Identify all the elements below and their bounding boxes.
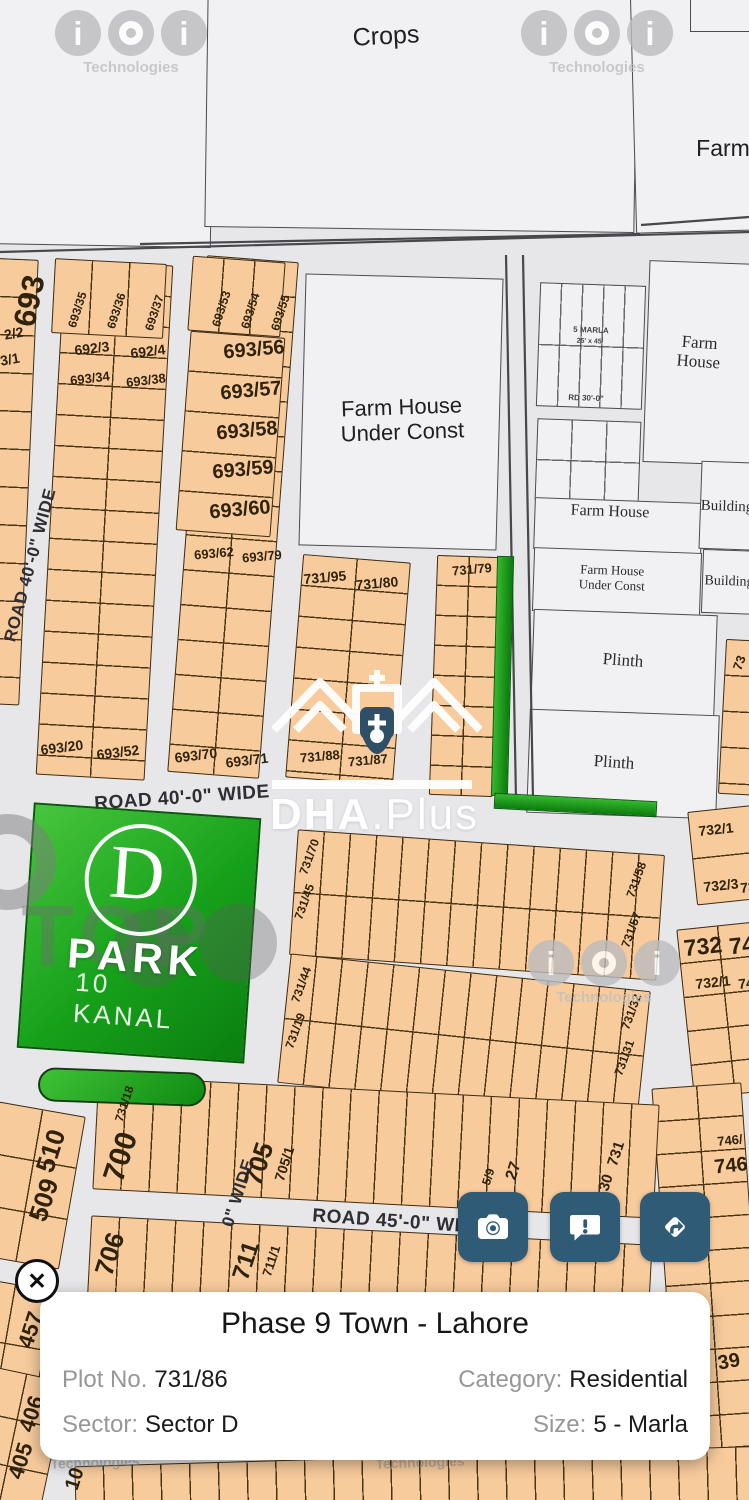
- sector-label: Sector:: [62, 1411, 138, 1438]
- size-field: Size:5 - Marla: [533, 1411, 688, 1439]
- plot-block-509-510[interactable]: [0, 1102, 86, 1270]
- parcel-crops[interactable]: [204, 0, 637, 233]
- plot-map-screen: TOPDPARK10 KANALCropsFarmFarm House Unde…: [0, 0, 749, 1500]
- park-letter: D: [107, 828, 168, 919]
- category-field: Category:Residential: [458, 1366, 688, 1394]
- comment-exclamation-icon: [567, 1209, 603, 1245]
- parcel-farm-house-under-const[interactable]: [298, 273, 503, 550]
- card-row-2: Sector:Sector D Size:5 - Marla: [40, 1411, 710, 1439]
- page-title: Phase 9 Town - Lahore: [40, 1307, 710, 1341]
- close-card-button[interactable]: ✕: [15, 1259, 59, 1303]
- card-row-1: Plot No.731/86 Category:Residential: [40, 1366, 710, 1394]
- plot-info-card: Phase 9 Town - Lahore Plot No.731/86 Cat…: [40, 1292, 710, 1460]
- park-size-label: 10 KANAL: [72, 967, 192, 1037]
- plot-block-732-a[interactable]: [687, 805, 749, 906]
- plot-no-value: 731/86: [154, 1366, 227, 1393]
- plot-block-693-c-top[interactable]: [187, 256, 285, 338]
- plot-block-slab-731-upper[interactable]: [289, 829, 665, 980]
- parcel-marla-grid[interactable]: [536, 282, 646, 410]
- parcel-grid-2[interactable]: [535, 418, 642, 504]
- close-icon: ✕: [27, 1268, 46, 1295]
- plot-block-731-d[interactable]: [285, 554, 411, 786]
- d-park-label: DPARK10 KANAL: [17, 802, 262, 1063]
- report-button[interactable]: [550, 1192, 620, 1262]
- parcel-top-left[interactable]: [0, 0, 215, 248]
- category-value: Residential: [569, 1366, 688, 1393]
- parcel-farm-house-uc-2[interactable]: [532, 547, 702, 617]
- plot-block-732-b[interactable]: [676, 921, 749, 1099]
- camera-button[interactable]: [458, 1192, 528, 1262]
- directions-button[interactable]: [640, 1192, 710, 1262]
- parcel-farm-house-right[interactable]: [643, 260, 749, 466]
- parcel-plinth-1[interactable]: [530, 609, 717, 717]
- plot-block-693-c-mid[interactable]: [176, 331, 286, 538]
- camera-icon: [475, 1209, 511, 1245]
- size-value: 5 - Marla: [593, 1411, 688, 1438]
- plot-block-693-b-top[interactable]: [51, 258, 167, 339]
- parcel-farm-house-mid[interactable]: [533, 497, 703, 555]
- plot-block-73-partial[interactable]: [718, 639, 749, 796]
- parcel-building-2[interactable]: [701, 549, 749, 615]
- plot-no-label: Plot No.: [62, 1366, 147, 1393]
- plot-block-731-e[interactable]: [429, 555, 501, 797]
- size-label: Size:: [533, 1411, 586, 1438]
- sector-value: Sector D: [145, 1411, 238, 1438]
- parcel-top-right[interactable]: [630, 0, 749, 234]
- category-label: Category:: [458, 1366, 562, 1393]
- map-canvas[interactable]: TOPDPARK10 KANALCropsFarmFarm House Unde…: [0, 0, 749, 1500]
- parcel-top-right-box[interactable]: [690, 0, 749, 32]
- green-pill[interactable]: [37, 1067, 206, 1107]
- plot-no-field: Plot No.731/86: [62, 1366, 228, 1394]
- plot-block-693-left[interactable]: [0, 257, 39, 706]
- directions-icon: [656, 1208, 694, 1246]
- sector-field: Sector:Sector D: [62, 1411, 238, 1439]
- parcel-building-1[interactable]: [698, 461, 749, 551]
